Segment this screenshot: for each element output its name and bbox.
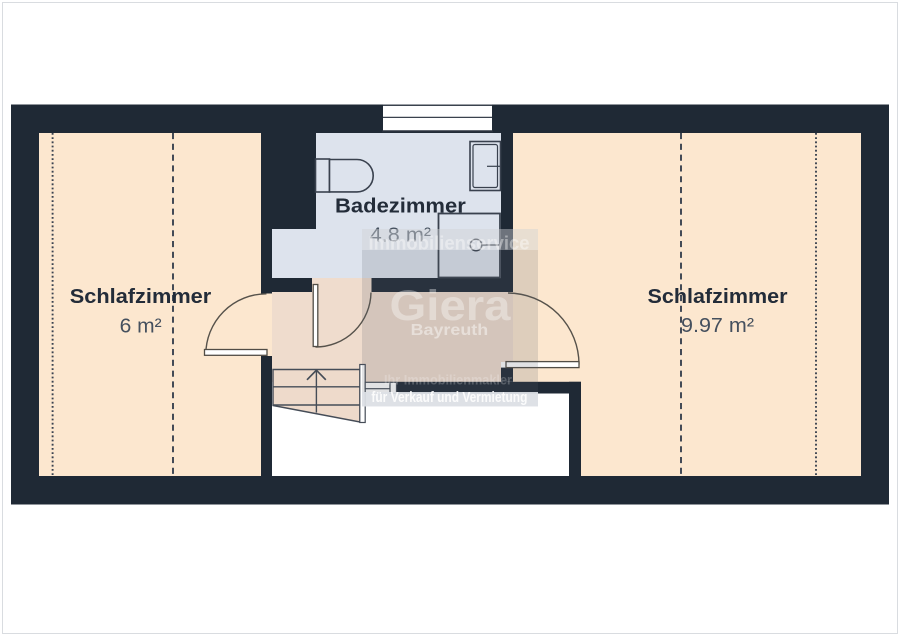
svg-text:Schlafzimmer: Schlafzimmer bbox=[648, 286, 788, 308]
svg-text:Schlafzimmer: Schlafzimmer bbox=[70, 286, 212, 308]
svg-text:9.97 m²: 9.97 m² bbox=[681, 314, 754, 337]
svg-text:für Verkauf und Vermietung: für Verkauf und Vermietung bbox=[371, 390, 527, 406]
svg-text:Ihr Immobilienmakler: Ihr Immobilienmakler bbox=[384, 373, 513, 388]
svg-text:Badezimmer: Badezimmer bbox=[335, 195, 466, 217]
svg-text:Bayreuth: Bayreuth bbox=[411, 322, 489, 339]
svg-text:6 m²: 6 m² bbox=[120, 315, 162, 338]
svg-text:Immobilienservice: Immobilienservice bbox=[369, 234, 530, 255]
